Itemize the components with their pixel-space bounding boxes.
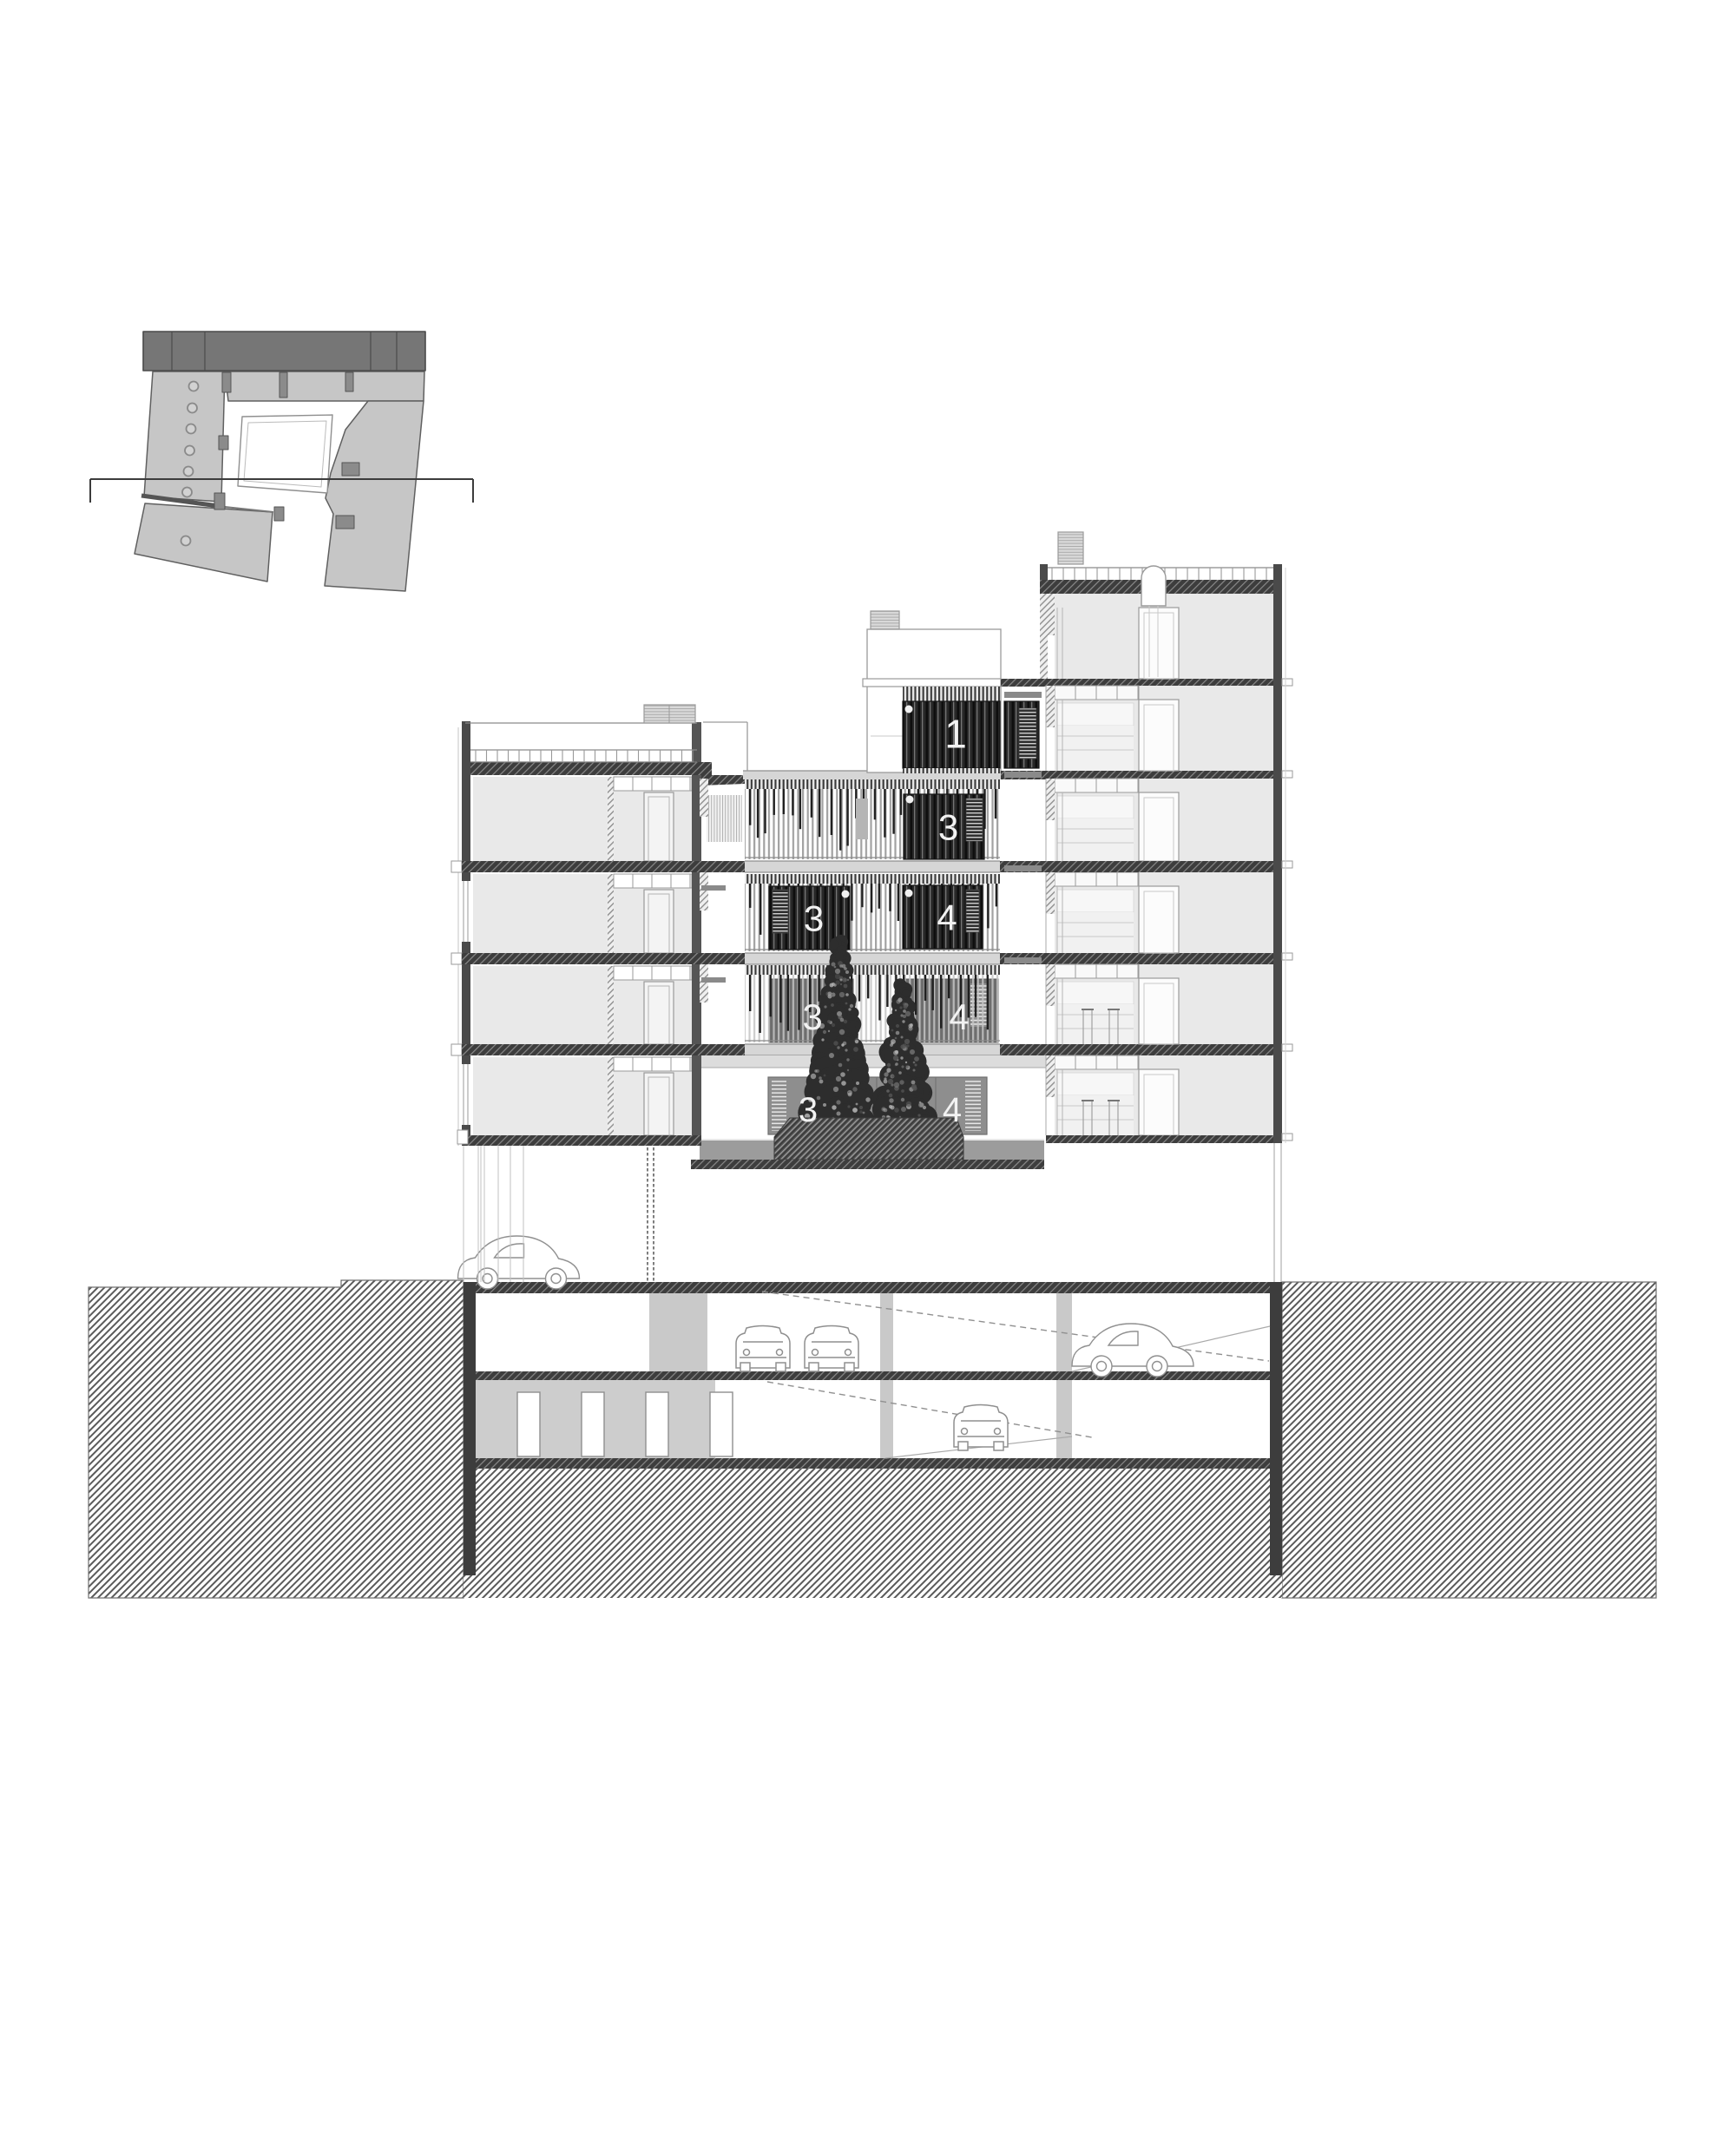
svg-text:4: 4 (949, 996, 969, 1037)
svg-text:3: 3 (938, 807, 958, 848)
svg-text:3: 3 (799, 1091, 818, 1129)
svg-text:4: 4 (937, 897, 957, 938)
svg-text:4: 4 (943, 1091, 962, 1129)
svg-text:3: 3 (804, 898, 824, 939)
svg-text:1: 1 (944, 712, 967, 757)
svg-text:3: 3 (802, 996, 822, 1037)
